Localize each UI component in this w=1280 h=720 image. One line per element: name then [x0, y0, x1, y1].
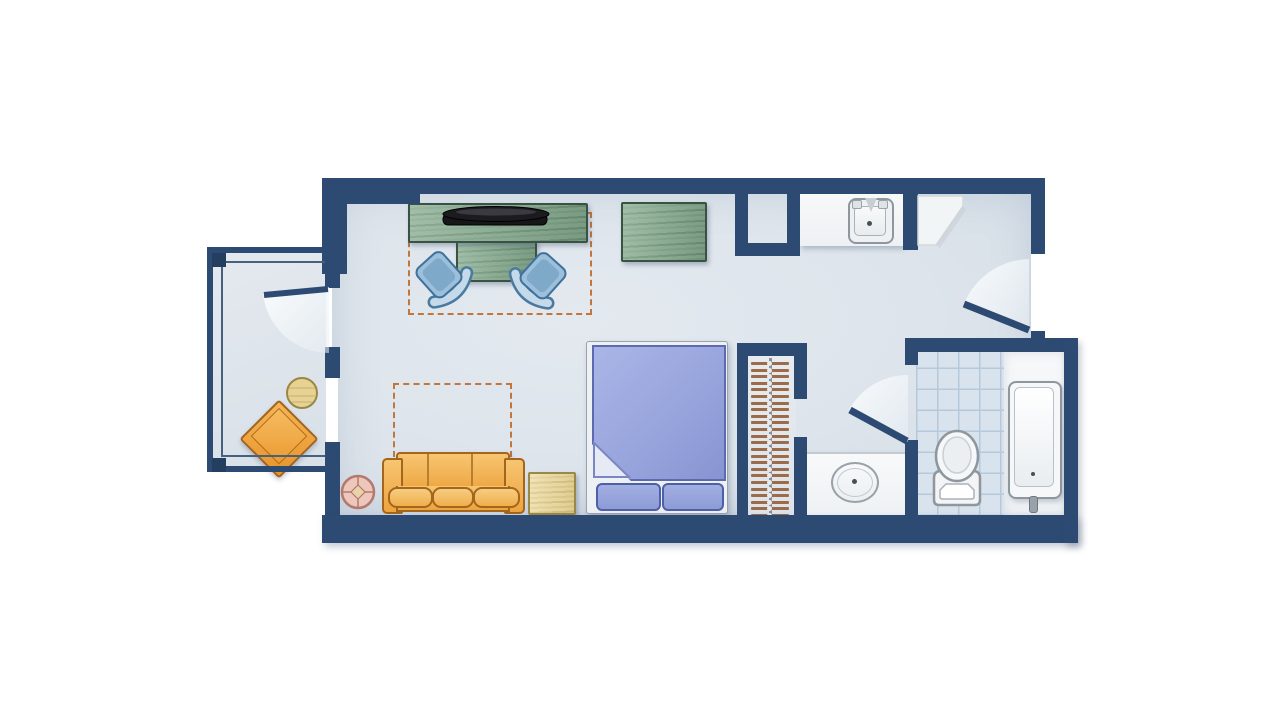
chair-left: [410, 246, 472, 308]
bathroom-door: [849, 375, 908, 442]
toilet: [934, 431, 980, 505]
balcony-round-table: [287, 378, 317, 408]
entry-counter: [918, 196, 966, 248]
flat-screen-tv: [443, 207, 549, 226]
round-side-table: [342, 476, 374, 508]
fixtures-overlay: [0, 0, 1280, 720]
entry-door: [964, 259, 1029, 331]
floor-plan-canvas: [0, 0, 1280, 720]
chair-right: [510, 247, 572, 309]
balcony-door: [263, 287, 329, 353]
